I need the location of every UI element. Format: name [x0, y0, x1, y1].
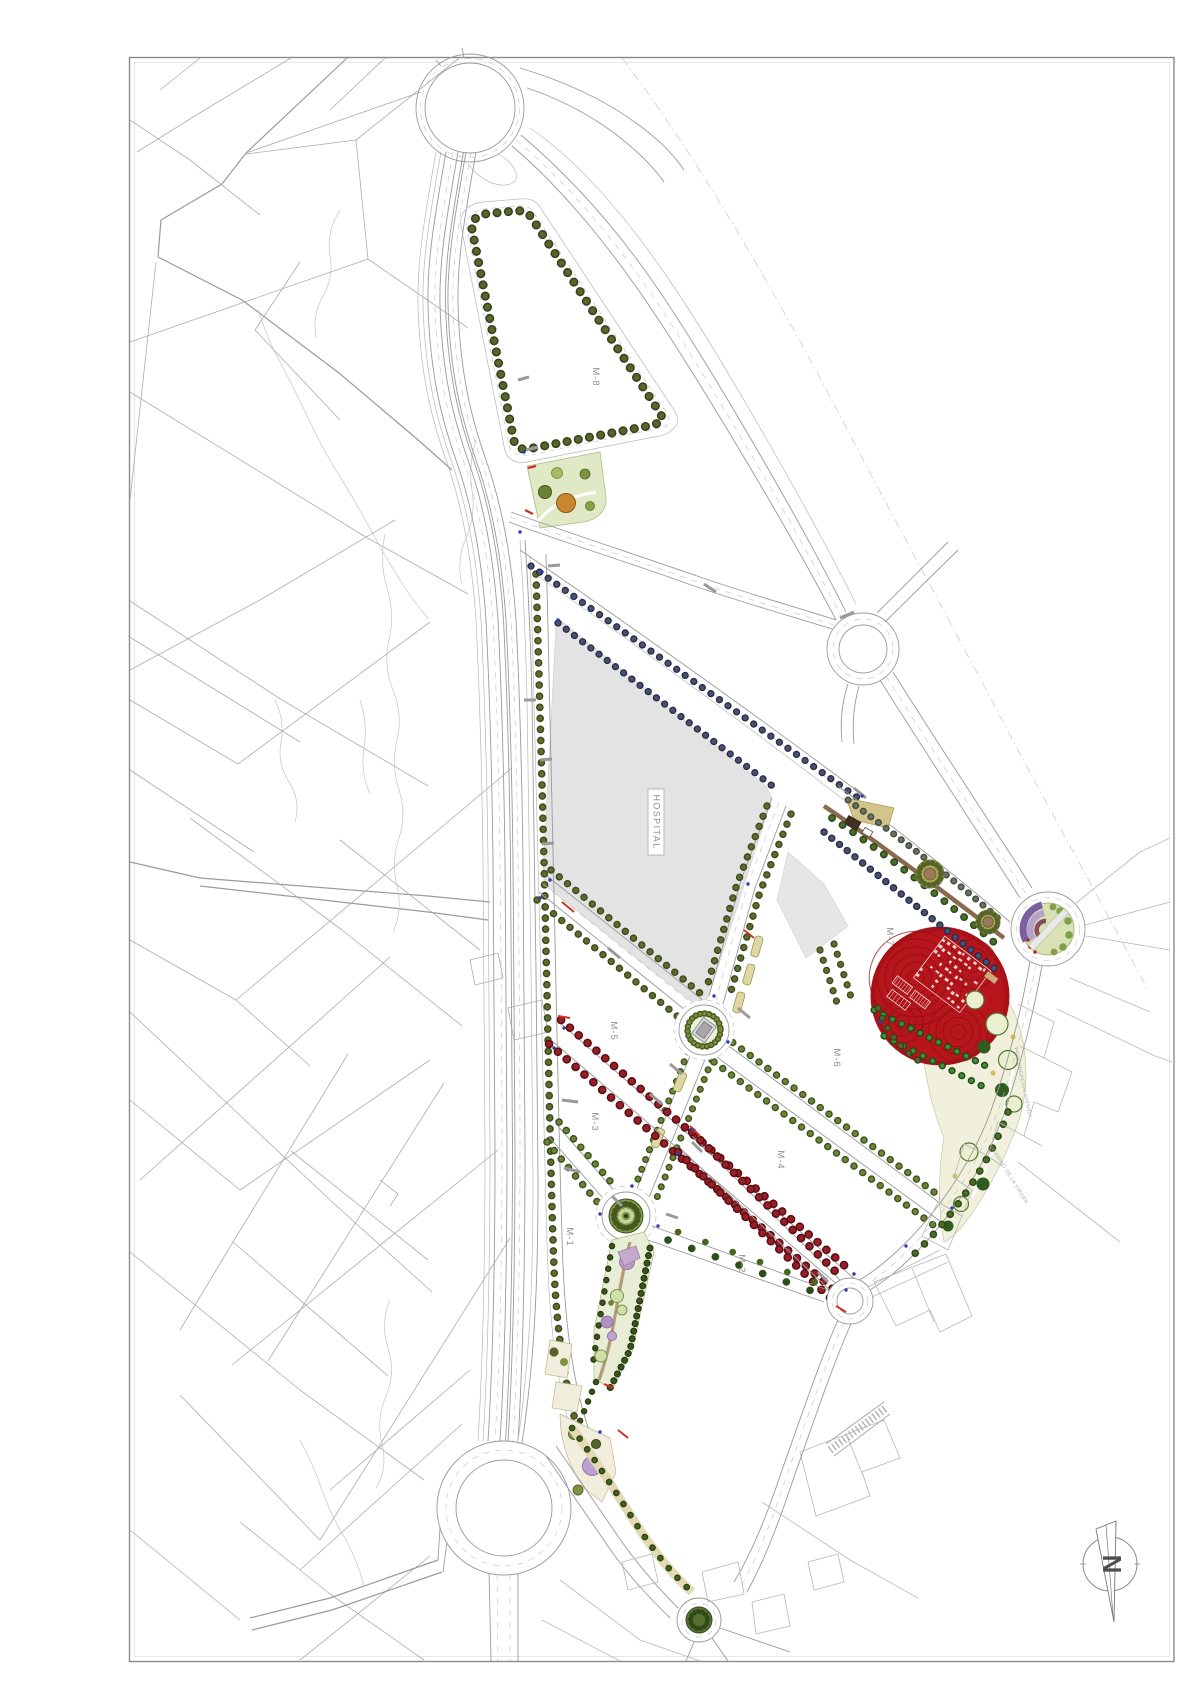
svg-text:N: N — [1097, 1555, 1127, 1574]
svg-text:M-2: M-2 — [736, 1254, 747, 1273]
svg-text:M-4: M-4 — [775, 1150, 786, 1169]
svg-text:M-6: M-6 — [831, 1048, 842, 1067]
svg-text:M-8: M-8 — [590, 367, 601, 386]
svg-text:M-1: M-1 — [564, 1227, 575, 1246]
svg-text:HOSPITAL: HOSPITAL — [652, 794, 662, 849]
svg-text:M-3: M-3 — [589, 1112, 600, 1131]
svg-text:M-5: M-5 — [608, 1021, 619, 1040]
